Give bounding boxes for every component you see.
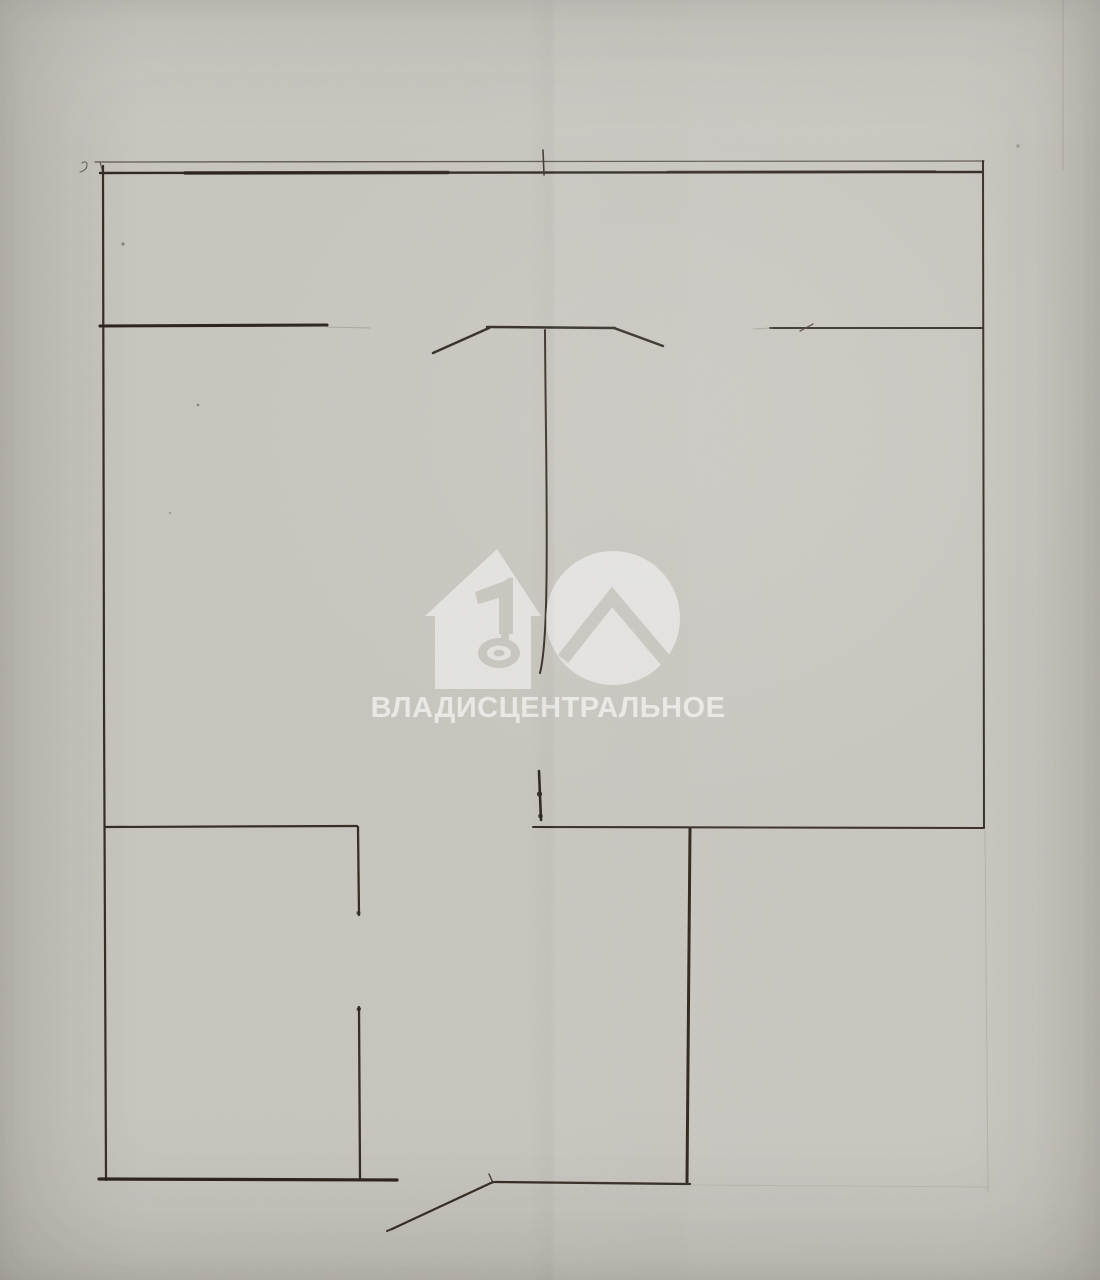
plan-stroke <box>1016 144 1019 147</box>
plan-stroke <box>387 1229 392 1231</box>
plan-stroke <box>103 166 104 700</box>
plan-stroke <box>433 328 489 353</box>
plan-stroke <box>100 325 327 326</box>
plan-stroke <box>692 1185 988 1187</box>
floor-plan-photo: ВЛАДИСЦЕНТРАЛЬНОЕ <box>0 0 1100 1280</box>
plan-stroke <box>614 328 663 346</box>
plan-stroke <box>540 330 547 673</box>
plan-stroke <box>983 161 984 828</box>
plan-stroke <box>80 162 87 172</box>
floor-plan-drawing <box>0 0 1100 1280</box>
plan-stroke <box>357 911 361 915</box>
plan-stroke <box>392 1182 493 1229</box>
plan-stroke <box>537 791 542 796</box>
plan-stroke <box>538 814 543 819</box>
plan-stroke <box>985 831 988 1192</box>
plan-stroke <box>687 829 690 1182</box>
plan-stroke <box>121 242 124 245</box>
plan-stroke <box>489 1174 493 1183</box>
plan-stroke <box>185 173 448 174</box>
plan-stroke <box>533 827 983 828</box>
plan-stroke <box>668 172 935 173</box>
plan-stroke <box>358 827 359 915</box>
plan-stroke <box>543 150 544 175</box>
plan-stroke <box>99 1179 397 1180</box>
plan-stroke <box>197 404 200 407</box>
plan-stroke <box>327 327 370 328</box>
plan-stroke <box>169 512 171 514</box>
plan-stroke <box>104 700 106 1180</box>
plan-stroke <box>357 1007 361 1011</box>
plan-stroke <box>753 328 772 329</box>
plan-stroke <box>105 826 357 827</box>
plan-stroke <box>487 327 615 328</box>
plan-stroke <box>495 1182 690 1184</box>
plan-stroke <box>95 161 984 162</box>
plan-stroke <box>359 1007 360 1178</box>
